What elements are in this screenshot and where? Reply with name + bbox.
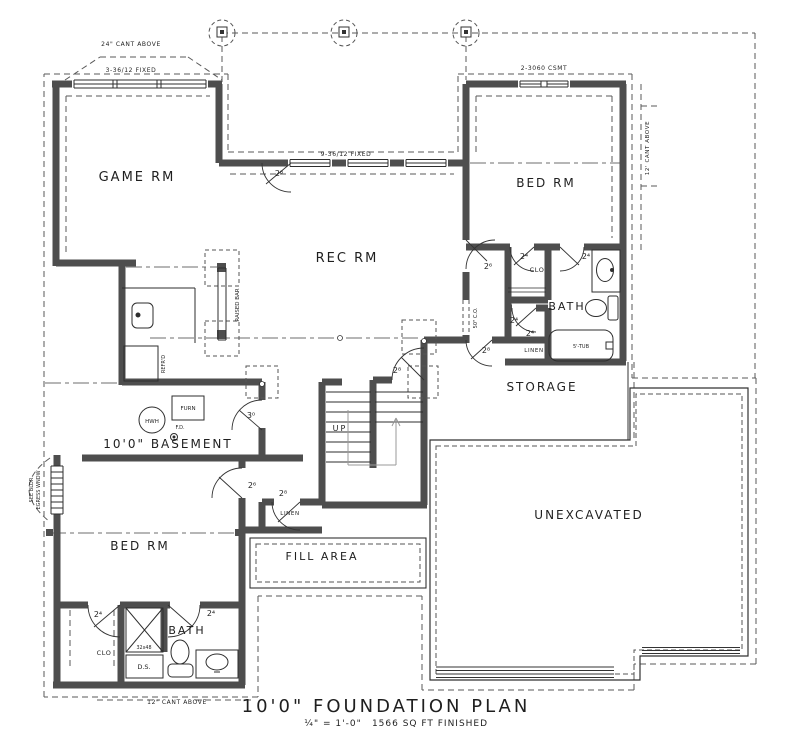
title-block: 10'0" FOUNDATION PLAN ¼" = 1'-0" 1566 SQ… <box>242 696 531 729</box>
label-refrigerator: REFR'D <box>161 355 167 373</box>
egress-window <box>51 466 63 514</box>
label-egress-line2: EGRESS WNDW <box>36 470 42 509</box>
clo-upper-shelf <box>508 288 546 292</box>
label-clo-lower: CLO <box>97 649 112 657</box>
casement-window <box>518 79 570 89</box>
fill-area-outline <box>250 538 426 588</box>
plan-scale: ¼" = 1'-0" <box>304 719 361 729</box>
label-casement-window: 2-3060 CSMT <box>521 65 568 72</box>
label-shower-size: 32x48 <box>136 645 151 651</box>
label-fixed-windows-mid: 9-36/12 FIXED <box>321 151 372 158</box>
label-cant-above-right: 12' CANT ABOVE <box>645 121 651 175</box>
label-rec-rm: REC RM <box>316 251 379 266</box>
plan-area: 1566 SQ FT FINISHED <box>372 719 488 729</box>
plan-title: 10'0" FOUNDATION PLAN <box>242 696 531 717</box>
label-cased-opening: 50" C.O. <box>473 307 479 328</box>
label-egress-line1: SEE BLDR <box>29 477 35 502</box>
label-game-rm: GAME RM <box>99 170 176 185</box>
door-size-label: 2⁸ <box>279 489 287 498</box>
label-bed-rm-lower: BED RM <box>110 539 170 553</box>
label-bed-rm-upper: BED RM <box>516 176 576 190</box>
label-fixed-windows-left: 3-36/12 FIXED <box>106 67 157 74</box>
label-linen-lower: LINEN <box>280 511 299 517</box>
door-size-label: 2⁴ <box>94 610 102 619</box>
label-clo-upper: CLO <box>530 266 545 274</box>
door-size-label: 2⁴ <box>520 252 528 261</box>
label-stairs-up: UP <box>333 424 348 433</box>
column-pads <box>205 250 438 398</box>
fixed-windows-left <box>72 79 208 89</box>
label-linen-upper: LINEN <box>524 348 543 354</box>
floor-plan-drawing: GAME RM BED RM REC RM CLO BATH LINEN STO… <box>0 0 794 756</box>
door-size-label: 2⁸ <box>482 346 490 355</box>
label-hwh: HWH <box>145 419 159 425</box>
label-floor-drain: F.D. <box>175 425 185 431</box>
label-cant-above-bottom: 12" CANT ABOVE <box>147 699 207 706</box>
toilet-tank-upper <box>608 296 618 320</box>
door-size-label: 2⁴ <box>582 252 590 261</box>
door-size-label: 3⁰ <box>247 411 255 420</box>
label-unexcavated: UNEXCAVATED <box>534 508 643 522</box>
door-size-label: 2⁴ <box>526 329 534 338</box>
label-storage: STORAGE <box>506 380 577 394</box>
toilet-bowl-lower <box>171 640 189 664</box>
label-raised-bar: RAISED BAR <box>235 288 241 321</box>
label-fill-area: FILL AREA <box>286 550 359 563</box>
label-bath-upper: BATH <box>548 300 585 313</box>
label-basement: 10'0" BASEMENT <box>103 437 232 451</box>
bar-sink <box>132 303 153 328</box>
foundation-plan-sheet: GAME RM BED RM REC RM CLO BATH LINEN STO… <box>0 0 794 756</box>
deck-columns <box>209 20 479 46</box>
door-size-label: 2⁸ <box>393 366 401 375</box>
wall-hinge-dots <box>260 336 427 387</box>
cased-opening-dashes <box>463 300 469 335</box>
label-downspout: D.S. <box>137 663 150 671</box>
door-swings <box>88 163 584 637</box>
toilet-base-lower <box>168 664 193 677</box>
door-size-label: 2⁶ <box>484 262 492 271</box>
door-size-label: 2⁸ <box>275 169 283 178</box>
door-size-label: 2⁶ <box>248 481 256 490</box>
door-size-label: 2⁴ <box>207 609 215 618</box>
tub-faucet <box>606 342 613 349</box>
refrigerator-box <box>124 346 158 381</box>
door-size-label: 2⁴ <box>510 316 518 325</box>
label-bath-lower: BATH <box>168 624 205 637</box>
toilet-bowl-upper <box>586 300 607 317</box>
sink-lower <box>206 654 228 670</box>
label-tub: 5'-TUB <box>573 344 590 350</box>
label-cant-above-top: 24" CANT ABOVE <box>101 41 161 48</box>
wet-bar <box>122 268 226 381</box>
label-furnace: FURN <box>180 406 195 412</box>
fixed-windows-mid <box>288 159 448 168</box>
